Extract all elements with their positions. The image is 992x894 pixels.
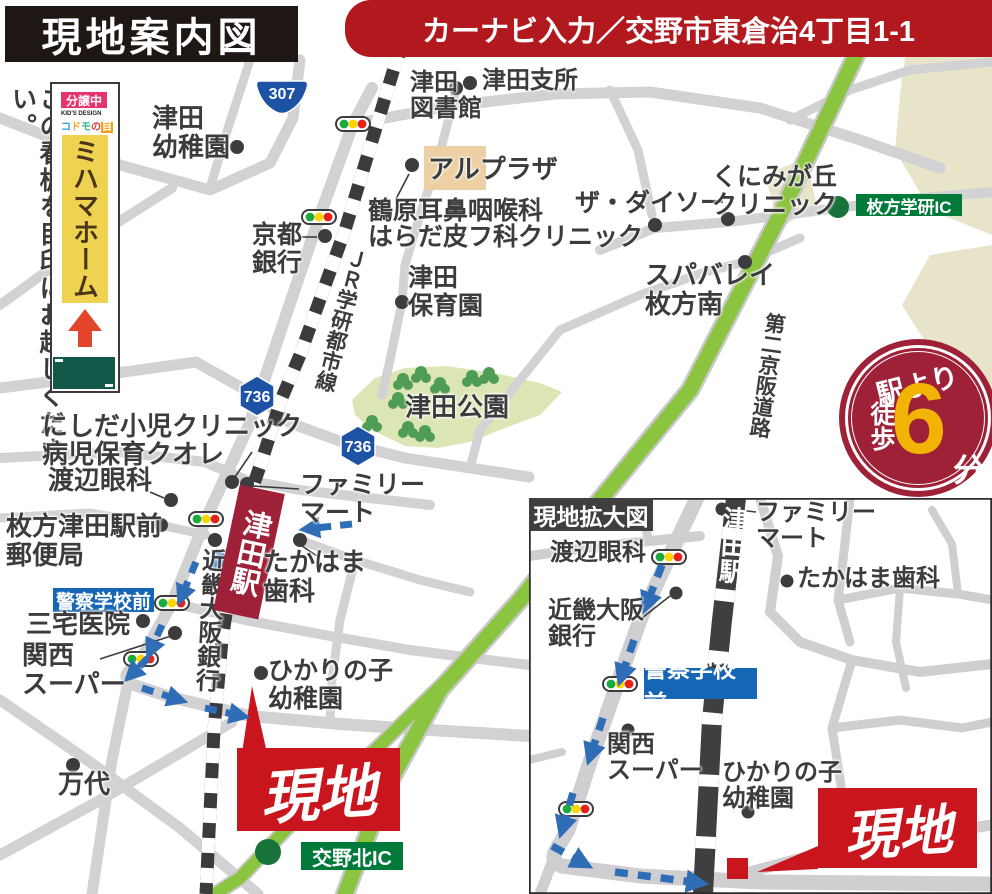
car-navi-address: カーナビ入力／交野市東倉治4丁目1-1 xyxy=(345,0,992,57)
ic-badge-gakken: 枚方学研IC xyxy=(856,194,962,216)
poi-label-tsuda-kindergarten: 津田 幼稚園 xyxy=(152,104,230,161)
inset-label-family-mart: ファミリー マート xyxy=(756,500,876,553)
site-box-main: 現地 xyxy=(237,748,400,831)
status-badge: 分譲中 xyxy=(61,92,107,108)
poi-label-al-plaza: アルプラザ xyxy=(428,155,558,184)
poi-label-kunimigaoka-clinic: くにみが丘 クリニック xyxy=(712,164,837,219)
company-banner: ミハマホーム xyxy=(62,135,108,303)
inset-label-takahama-dental: たかはま歯科 xyxy=(797,566,940,592)
kids-design-label: KID'S DESIGN xyxy=(61,111,101,117)
poi-label-tsuda-library: 津田 図書館 xyxy=(410,70,482,123)
walk-badge-minutes: 6 xyxy=(891,369,947,469)
poi-label-kyoto-bank: 京都 銀行 xyxy=(252,222,302,277)
poi-label-tsuruhara-ent: 鶴原耳鼻咽喉科 xyxy=(368,198,543,226)
ic-dot-katano xyxy=(255,839,281,865)
company-name: ミハマホーム xyxy=(67,138,104,300)
route-shield-307: 307 xyxy=(256,81,307,114)
poi-label-miyake-clinic: 三宅医院 xyxy=(26,610,130,639)
station-box-inset: 津田駅 xyxy=(711,505,754,597)
walk-time-badge: 駅より 徒歩 6 分 xyxy=(839,339,992,497)
inset-label-kinki-osaka-bank: 近畿大阪 銀行 xyxy=(548,598,644,651)
poi-label-family-mart: ファミリー マート xyxy=(300,472,425,527)
inset-label-kansai-super: 関西 スーパー xyxy=(607,732,703,785)
up-arrow-icon xyxy=(68,309,102,349)
inset-title: 現地拡大図 xyxy=(529,498,653,531)
poi-label-tsuda-branch-office: 津田支所 xyxy=(482,68,578,94)
poi-label-tsuda-park: 津田公園 xyxy=(405,393,509,422)
poi-label-kansai-super: 関西 スーパー xyxy=(22,641,126,698)
poi-label-nishida-clinic: にしだ小児クリニック xyxy=(42,412,302,441)
poi-label-takahama-dental: たかはま 歯科 xyxy=(263,548,366,605)
poi-label-mandai: 万代 xyxy=(58,770,110,799)
kodomo-logo: コドモの目 xyxy=(61,118,113,133)
poi-label-watanabe-eye: 渡辺眼科 xyxy=(48,466,152,495)
walk-badge-unit: 分 xyxy=(953,445,985,491)
inset-label-watanabe-eye: 渡辺眼科 xyxy=(550,540,646,566)
signboard: 分譲中 KID'S DESIGN コドモの目 ミハマホーム xyxy=(50,82,120,393)
bus-stop-badge-inset: 警察学校前 xyxy=(644,668,757,699)
svg-text:307: 307 xyxy=(269,86,296,103)
poi-label-harada-derma: はらだ皮フ科クリニック xyxy=(368,224,643,252)
poi-label-hikarinoko: ひかりの子 幼稚園 xyxy=(268,658,393,713)
page-title: 現地案内図 xyxy=(5,6,298,62)
svg-text:736: 736 xyxy=(345,439,372,456)
site-box-inset: 現地 xyxy=(818,788,977,868)
site-guide-map: 307 736 736 xyxy=(0,0,992,894)
inset-site-square xyxy=(727,858,748,879)
poi-label-tsuda-nursery: 津田 保育園 xyxy=(408,265,483,320)
poi-label-post-office: 枚方津田駅前 郵便局 xyxy=(6,512,162,569)
svg-text:736: 736 xyxy=(244,389,271,406)
poi-label-daiso: ザ・ダイソー xyxy=(575,190,725,218)
ic-badge-katano: 交野北IC xyxy=(301,842,403,870)
route-shield-736-b: 736 xyxy=(341,426,375,466)
poi-label-spa-valley: スパバレイ 枚方南 xyxy=(645,261,775,318)
sign-footer-panel xyxy=(53,357,115,389)
